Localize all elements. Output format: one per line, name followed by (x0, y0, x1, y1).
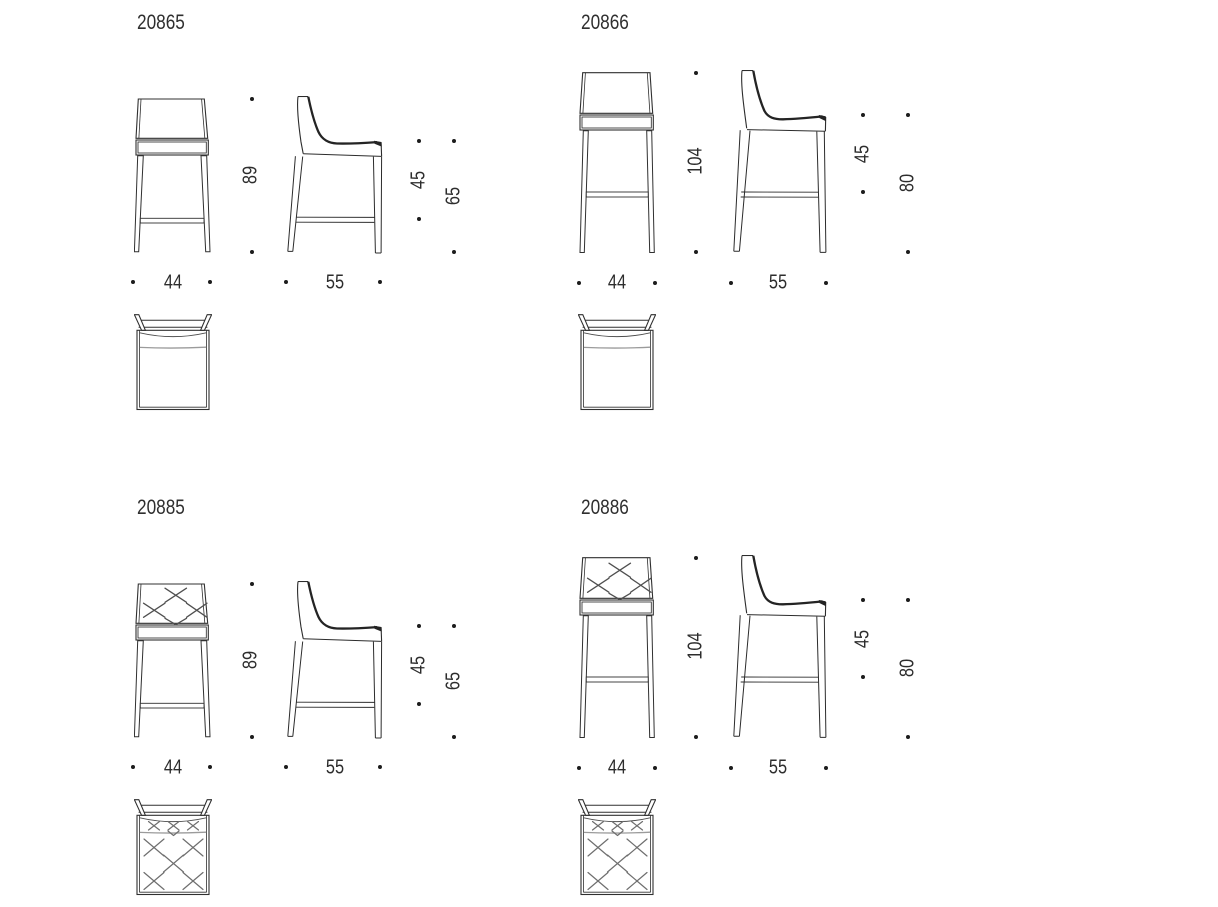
dimension-dot (208, 765, 212, 769)
dim-seat-height: 80 (897, 174, 920, 192)
dim-seat-height: 65 (443, 672, 466, 690)
product-code: 20886 (581, 496, 629, 520)
dim-depth: 55 (326, 757, 344, 780)
drawing-sheet: 20865 89 45 65 44 55 20866 104 45 80 44 … (0, 0, 1218, 907)
front-view-drawing (578, 71, 656, 254)
side-view-drawing (731, 70, 831, 254)
dimension-dot (577, 281, 581, 285)
dimension-dot (452, 624, 456, 628)
dimension-dot (131, 280, 135, 284)
dimension-dot (378, 765, 382, 769)
dim-width: 44 (164, 757, 182, 780)
dimension-dot (861, 598, 865, 602)
dimension-dot (861, 675, 865, 679)
dimension-dot (452, 139, 456, 143)
dimension-dot (577, 766, 581, 770)
dimension-dot (417, 702, 421, 706)
dimension-dot (694, 556, 698, 560)
dimension-dot (694, 71, 698, 75)
dimension-dot (131, 765, 135, 769)
dimension-dot (378, 280, 382, 284)
dim-width: 44 (608, 272, 626, 295)
dimension-dot (284, 280, 288, 284)
dimension-dot (417, 624, 421, 628)
top-view-drawing (134, 797, 212, 897)
side-view-drawing (731, 555, 831, 739)
top-view-drawing (578, 312, 656, 412)
dimension-dot (861, 113, 865, 117)
top-view-drawing (134, 312, 212, 412)
front-view-drawing (578, 556, 656, 739)
dim-depth: 55 (769, 757, 787, 780)
dimension-dot (694, 735, 698, 739)
dim-backrest-height: 45 (852, 145, 875, 163)
dimension-dot (906, 735, 910, 739)
dimension-dot (824, 281, 828, 285)
dimension-dot (694, 250, 698, 254)
dimension-dot (729, 281, 733, 285)
product-code: 20865 (137, 11, 185, 35)
dimension-dot (452, 735, 456, 739)
dimension-dot (250, 582, 254, 586)
dimension-dot (906, 113, 910, 117)
dim-backrest-height: 45 (408, 171, 431, 189)
dim-depth: 55 (326, 272, 344, 295)
dimension-dot (906, 598, 910, 602)
dim-depth: 55 (769, 272, 787, 295)
side-view-drawing (285, 581, 385, 739)
front-view-drawing (134, 581, 212, 739)
dimension-dot (250, 97, 254, 101)
front-view-drawing (134, 96, 212, 254)
dimension-dot (906, 250, 910, 254)
product-code: 20866 (581, 11, 629, 35)
dimension-dot (208, 280, 212, 284)
dimension-dot (653, 281, 657, 285)
dim-overall-height: 89 (240, 166, 263, 184)
dim-overall-height: 89 (240, 651, 263, 669)
dim-width: 44 (608, 757, 626, 780)
dim-backrest-height: 45 (408, 656, 431, 674)
dimension-dot (417, 217, 421, 221)
dim-backrest-height: 45 (852, 630, 875, 648)
dimension-dot (653, 766, 657, 770)
dimension-dot (250, 250, 254, 254)
dim-seat-height: 80 (897, 659, 920, 677)
dimension-dot (284, 765, 288, 769)
top-view-drawing (578, 797, 656, 897)
dimension-dot (861, 190, 865, 194)
dimension-dot (250, 735, 254, 739)
side-view-drawing (285, 96, 385, 254)
dimension-dot (824, 766, 828, 770)
dimension-dot (417, 139, 421, 143)
dim-overall-height: 104 (685, 147, 708, 174)
product-code: 20885 (137, 496, 185, 520)
dim-overall-height: 104 (685, 632, 708, 659)
dimension-dot (729, 766, 733, 770)
dim-width: 44 (164, 272, 182, 295)
dimension-dot (452, 250, 456, 254)
dim-seat-height: 65 (443, 187, 466, 205)
